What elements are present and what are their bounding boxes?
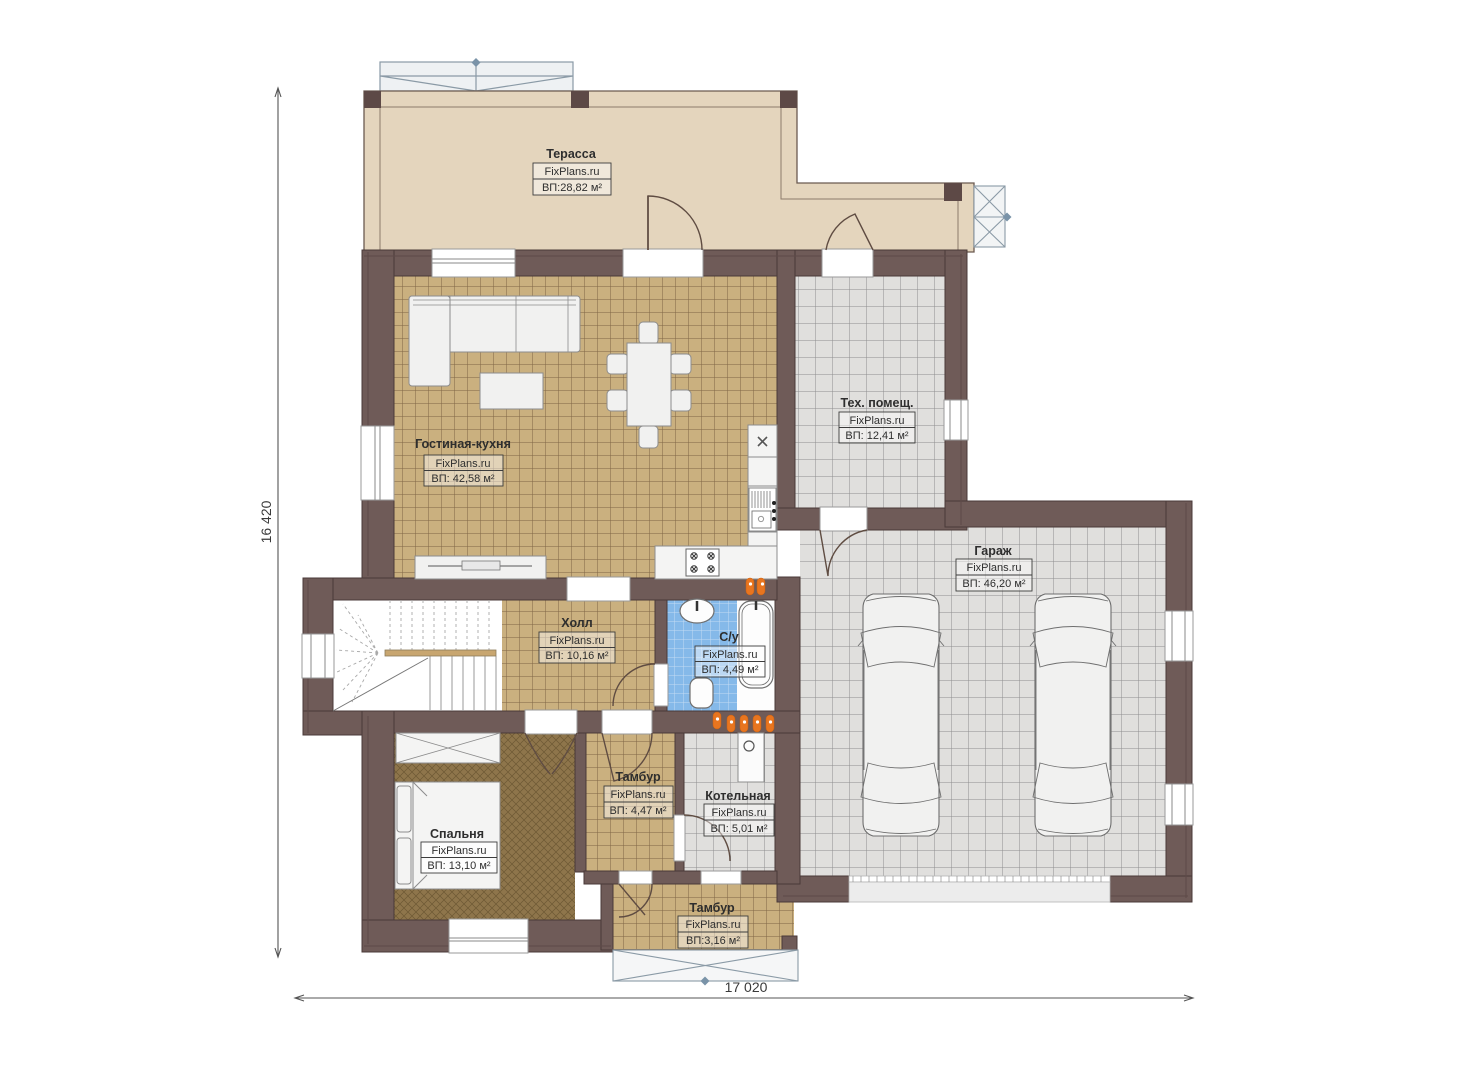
svg-text:Тех. помещ.: Тех. помещ. xyxy=(841,396,914,410)
svg-text:FixPlans.ru: FixPlans.ru xyxy=(685,919,740,931)
svg-text:ВП: 4,47 м²: ВП: 4,47 м² xyxy=(609,805,666,817)
svg-text:ВП:28,82 м²: ВП:28,82 м² xyxy=(542,182,602,194)
svg-text:С/у: С/у xyxy=(719,630,739,644)
svg-text:FixPlans.ru: FixPlans.ru xyxy=(431,845,486,857)
svg-text:FixPlans.ru: FixPlans.ru xyxy=(966,562,1021,574)
svg-text:ВП: 4,49 м²: ВП: 4,49 м² xyxy=(701,664,758,676)
svg-text:ВП: 13,10 м²: ВП: 13,10 м² xyxy=(427,860,491,872)
svg-text:ВП: 12,41 м²: ВП: 12,41 м² xyxy=(845,430,909,442)
svg-text:Гостиная-кухня: Гостиная-кухня xyxy=(415,437,511,451)
svg-text:ВП: 5,01 м²: ВП: 5,01 м² xyxy=(710,823,767,835)
svg-text:17 020: 17 020 xyxy=(725,979,768,995)
svg-text:Спальня: Спальня xyxy=(430,827,484,841)
svg-text:Гараж: Гараж xyxy=(974,544,1011,558)
svg-text:FixPlans.ru: FixPlans.ru xyxy=(702,649,757,661)
svg-text:FixPlans.ru: FixPlans.ru xyxy=(544,166,599,178)
svg-text:Терасса: Терасса xyxy=(546,147,597,161)
svg-text:FixPlans.ru: FixPlans.ru xyxy=(549,635,604,647)
svg-text:16 420: 16 420 xyxy=(258,500,274,543)
svg-text:ВП: 10,16 м²: ВП: 10,16 м² xyxy=(545,650,609,662)
svg-text:FixPlans.ru: FixPlans.ru xyxy=(610,789,665,801)
svg-text:ВП:3,16 м²: ВП:3,16 м² xyxy=(686,935,740,947)
svg-text:Тамбур: Тамбур xyxy=(689,901,735,915)
svg-text:Котельная: Котельная xyxy=(705,789,770,803)
svg-text:Тамбур: Тамбур xyxy=(615,770,661,784)
svg-text:Холл: Холл xyxy=(561,616,592,630)
svg-text:ВП: 42,58 м²: ВП: 42,58 м² xyxy=(431,473,495,485)
svg-text:FixPlans.ru: FixPlans.ru xyxy=(849,415,904,427)
svg-text:FixPlans.ru: FixPlans.ru xyxy=(711,807,766,819)
svg-text:FixPlans.ru: FixPlans.ru xyxy=(435,458,490,470)
svg-text:ВП: 46,20 м²: ВП: 46,20 м² xyxy=(962,578,1026,590)
